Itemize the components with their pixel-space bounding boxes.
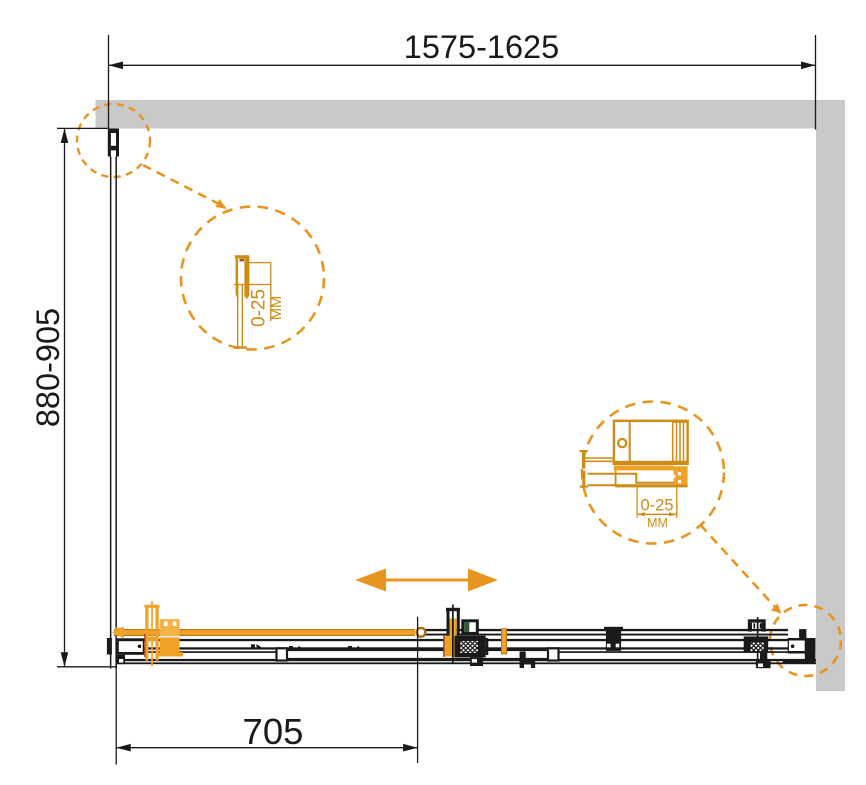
svg-text:0-25: 0-25 (640, 497, 673, 515)
svg-text:0-25: 0-25 (249, 289, 270, 327)
svg-text:1575-1625: 1575-1625 (404, 29, 559, 65)
svg-text:705: 705 (243, 711, 304, 752)
svg-text:MM: MM (647, 516, 668, 530)
svg-text:MM: MM (269, 296, 285, 320)
svg-text:880-905: 880-905 (30, 308, 66, 427)
